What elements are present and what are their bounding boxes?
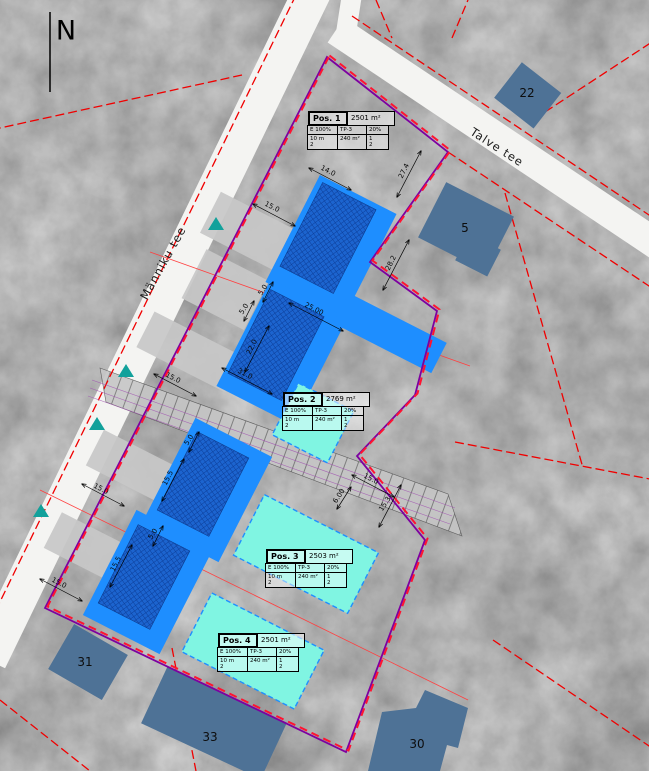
pos-frac-den: 2 [279,664,283,670]
pos-barea: 240 m² [295,572,325,588]
pos-name: Pos. 2 [283,392,323,407]
pos-name: Pos. 1 [308,111,348,126]
pos-barea: 240 m² [247,656,277,672]
pos-name: Pos. 3 [266,549,306,564]
pos-frac-den: 2 [344,423,348,429]
pos-table-2: Pos. 2 2769 m² E 100% TP-3 20% 10 m2 240… [283,392,370,431]
parcel-number-30: 30 [409,737,424,751]
parcel-number-22: 22 [519,86,534,100]
pos-frac-den: 2 [369,142,373,148]
pos-area: 2501 m² [258,633,305,648]
parcel-number-31: 31 [77,655,92,669]
site-plan-map: N Männiku tee Talve tee 22 5 31 33 30 15… [0,0,649,771]
pos-storeys: 2 [268,580,282,586]
pos-frac-den: 2 [327,580,331,586]
parcel-number-5: 5 [461,221,469,235]
pos-table-4: Pos. 4 2501 m² E 100% TP-3 20% 10 m2 240… [218,633,305,672]
north-label: N [56,16,76,47]
north-road-stub [344,0,352,46]
pos-storeys: 2 [220,664,234,670]
parcel-number-33: 33 [202,730,217,744]
pos-area: 2503 m² [306,549,353,564]
pos-barea: 240 m² [337,134,367,150]
pos-area: 2501 m² [348,111,395,126]
pos-area: 2769 m² [323,392,370,407]
pos-storeys: 2 [310,142,324,148]
pos-table-1: Pos. 1 2501 m² E 100% TP-3 20% 10 m2 240… [308,111,395,150]
pos-table-3: Pos. 3 2503 m² E 100% TP-3 20% 10 m2 240… [266,549,353,588]
pos-barea: 240 m² [312,415,342,431]
pos-name: Pos. 4 [218,633,258,648]
pos-storeys: 2 [285,423,299,429]
